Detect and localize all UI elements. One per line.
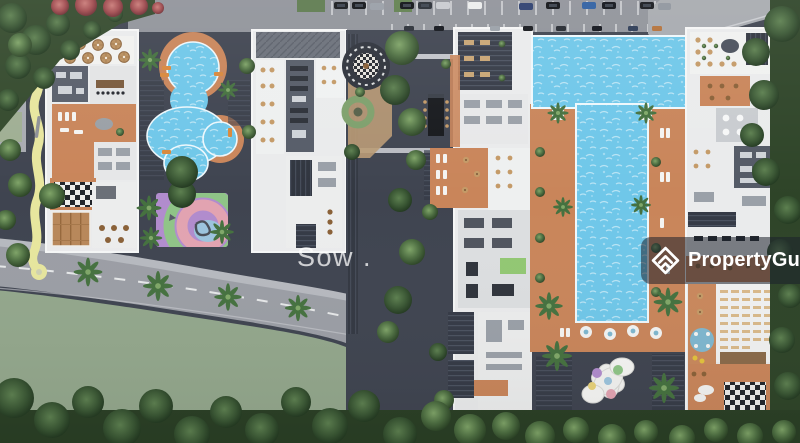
site-watermark-text: Sow . — [297, 242, 372, 273]
propertyguru-watermark-badge: PropertyGuru — [641, 237, 800, 284]
aerial-site-plan-screenshot: { "image": { "alt": "Aerial 3D rendering… — [0, 0, 800, 443]
brand-name-text: PropertyGuru — [688, 249, 800, 272]
site-plan-render — [0, 0, 800, 443]
propertyguru-diamond-icon — [650, 245, 681, 276]
light-overlay — [0, 0, 800, 443]
